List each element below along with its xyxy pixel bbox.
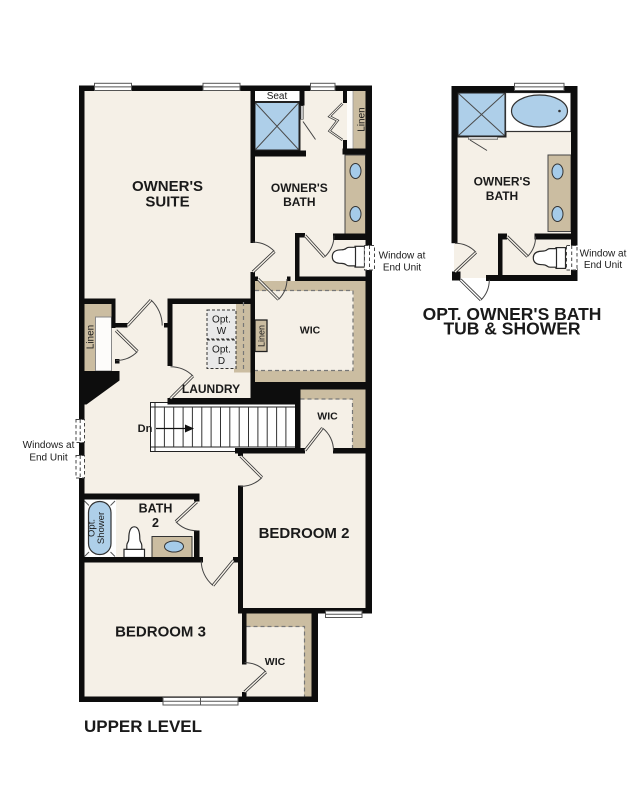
svg-text:BATH: BATH: [283, 195, 315, 209]
svg-text:Linen: Linen: [86, 325, 97, 349]
svg-text:W: W: [217, 326, 227, 337]
svg-text:WIC: WIC: [317, 411, 338, 423]
svg-text:End Unit: End Unit: [383, 263, 422, 274]
svg-text:Seat: Seat: [267, 91, 288, 102]
svg-text:Dn: Dn: [138, 423, 153, 435]
svg-text:Linen: Linen: [257, 325, 267, 347]
svg-text:BATH: BATH: [139, 502, 173, 516]
svg-text:Shower: Shower: [96, 512, 107, 544]
svg-text:Window at: Window at: [580, 249, 627, 260]
svg-text:LAUNDRY: LAUNDRY: [182, 382, 240, 396]
svg-text:Opt.: Opt.: [212, 345, 231, 356]
svg-text:D: D: [218, 356, 225, 367]
svg-text:OWNER'S: OWNER'S: [132, 178, 203, 195]
svg-text:OWNER'S: OWNER'S: [271, 181, 328, 195]
svg-text:Linen: Linen: [357, 107, 368, 131]
svg-text:2: 2: [152, 516, 159, 530]
svg-text:WIC: WIC: [265, 656, 286, 668]
svg-text:UPPER LEVEL: UPPER LEVEL: [84, 717, 202, 736]
svg-text:OWNER'S: OWNER'S: [474, 175, 531, 189]
svg-text:BEDROOM 2: BEDROOM 2: [259, 525, 350, 542]
svg-text:Opt.: Opt.: [212, 315, 231, 326]
svg-text:Window at: Window at: [379, 251, 426, 262]
svg-text:BATH: BATH: [486, 189, 518, 203]
svg-text:WIC: WIC: [300, 325, 321, 337]
svg-text:Windows at: Windows at: [23, 440, 75, 451]
svg-text:End Unit: End Unit: [29, 453, 68, 464]
svg-text:SUITE: SUITE: [145, 194, 189, 211]
svg-text:End Unit: End Unit: [584, 260, 623, 271]
svg-text:TUB & SHOWER: TUB & SHOWER: [443, 319, 580, 339]
svg-text:BEDROOM 3: BEDROOM 3: [115, 624, 206, 641]
